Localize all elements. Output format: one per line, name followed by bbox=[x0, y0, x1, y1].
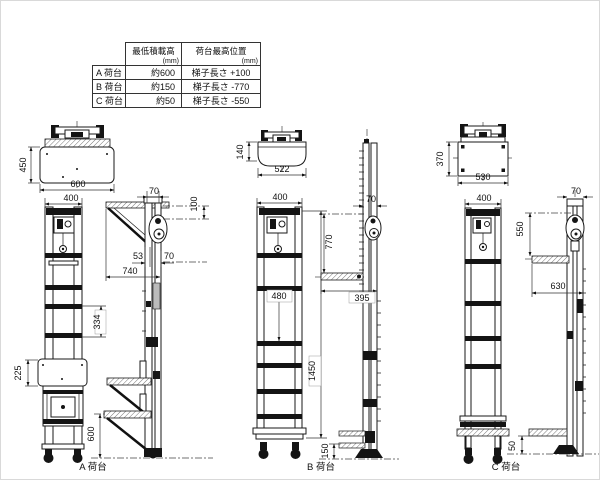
dim-b-150: 150 bbox=[320, 443, 330, 458]
dim-a-400: 400 bbox=[63, 193, 78, 203]
dim-c-550: 550 bbox=[515, 221, 525, 236]
dim-c-70: 70 bbox=[571, 186, 581, 196]
drawing-b: 140 522 400 bbox=[235, 126, 399, 473]
spec-table: 最低積載高 (mm) 荷台最高位置 (mm) A 荷台 約600 梯子長さ +1… bbox=[92, 42, 261, 108]
dim-c-50: 50 bbox=[507, 441, 517, 451]
spec-header-max-pos: 荷台最高位置 (mm) bbox=[182, 43, 261, 66]
dim-c-530: 530 bbox=[475, 172, 490, 182]
dim-b-140: 140 bbox=[235, 144, 245, 159]
dim-a-600-side: 600 bbox=[86, 426, 96, 441]
dim-a-334: 334 bbox=[92, 314, 102, 329]
dim-b-770: 770 bbox=[324, 234, 334, 249]
dim-b-400: 400 bbox=[272, 192, 287, 202]
dim-c-400: 400 bbox=[476, 193, 491, 203]
dim-a-600-top: 600 bbox=[70, 179, 85, 189]
technical-drawing-sheet: 450 600 400 bbox=[0, 0, 600, 480]
spec-row-b-name: B 荷台 bbox=[93, 80, 126, 94]
spec-header-max-pos-unit: (mm) bbox=[184, 58, 258, 65]
spec-row-b-min-load: 約150 bbox=[126, 80, 182, 94]
caption-b: B 荷台 bbox=[307, 461, 335, 473]
c-top-view: 370 530 bbox=[435, 122, 513, 186]
spec-row-b-max-pos: 梯子長さ -770 bbox=[182, 80, 261, 94]
dim-b-480: 480 bbox=[271, 291, 286, 301]
dim-a-70-side: 70 bbox=[164, 251, 174, 261]
drawing-c: 370 530 400 bbox=[435, 122, 599, 473]
b-top-view: 140 522 bbox=[235, 126, 306, 178]
spec-header-max-pos-label: 荷台最高位置 bbox=[196, 46, 247, 56]
c-side-view: 70 550 630 50 bbox=[507, 186, 599, 456]
spec-header-empty-cell bbox=[93, 43, 126, 66]
dim-a-450: 450 bbox=[18, 157, 28, 172]
spec-header-row: 最低積載高 (mm) 荷台最高位置 (mm) bbox=[93, 43, 261, 66]
ladder-drawing-svg: 450 600 400 bbox=[1, 1, 600, 480]
spec-row-c-name: C 荷台 bbox=[93, 94, 126, 108]
spec-row-c-max-pos: 梯子長さ -550 bbox=[182, 94, 261, 108]
spec-header-min-load: 最低積載高 (mm) bbox=[126, 43, 182, 66]
drawing-a: 450 600 400 bbox=[13, 121, 213, 473]
spec-row-c-min-load: 約50 bbox=[126, 94, 182, 108]
caption-c: C 荷台 bbox=[492, 461, 521, 473]
b-side-view: 70 770 395 150 bbox=[315, 129, 399, 459]
b-front-view: 400 480 bbox=[253, 192, 327, 459]
dim-b-70: 70 bbox=[366, 194, 376, 204]
spec-row-a-max-pos: 梯子長さ +100 bbox=[182, 66, 261, 80]
caption-a: A 荷台 bbox=[79, 461, 106, 473]
spec-header-min-load-unit: (mm) bbox=[128, 58, 179, 65]
a-top-view: 450 600 bbox=[18, 121, 114, 193]
dim-c-370: 370 bbox=[435, 151, 445, 166]
dim-b-395: 395 bbox=[354, 293, 369, 303]
spec-row-a-name: A 荷台 bbox=[93, 66, 126, 80]
spec-row-a: A 荷台 約600 梯子長さ +100 bbox=[93, 66, 261, 80]
spec-row-c: C 荷台 約50 梯子長さ -550 bbox=[93, 94, 261, 108]
spec-row-b: B 荷台 約150 梯子長さ -770 bbox=[93, 80, 261, 94]
dim-a-225: 225 bbox=[13, 365, 23, 380]
c-front-view: 400 bbox=[457, 193, 509, 464]
dim-b-522: 522 bbox=[274, 164, 289, 174]
dim-b-1450: 1450 bbox=[307, 361, 317, 381]
dim-a-740: 740 bbox=[122, 266, 137, 276]
dim-a-70-top: 70 bbox=[149, 186, 159, 196]
a-front-view: 400 334 225 bbox=[13, 193, 106, 463]
dim-a-53: 53 bbox=[133, 251, 143, 261]
spec-row-a-min-load: 約600 bbox=[126, 66, 182, 80]
spec-header-min-load-label: 最低積載高 bbox=[132, 46, 175, 56]
dim-a-100: 100 bbox=[189, 196, 199, 211]
dim-c-630: 630 bbox=[550, 281, 565, 291]
